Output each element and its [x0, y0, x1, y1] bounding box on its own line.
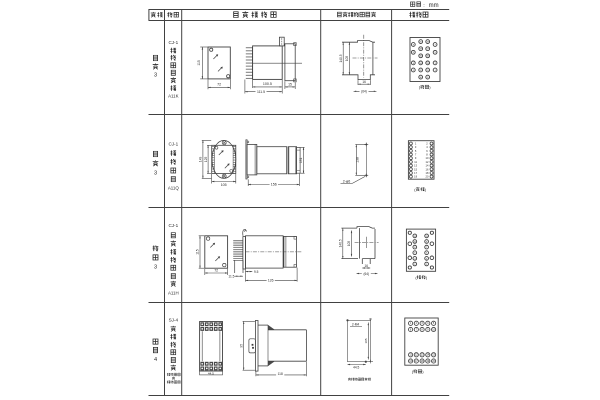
svg-text:11: 11: [414, 160, 417, 164]
svg-text:): ): [426, 275, 428, 280]
svg-text:CJ-1: CJ-1: [168, 223, 178, 228]
svg-text:149: 149: [199, 157, 203, 163]
svg-text:111.5: 111.5: [257, 90, 265, 94]
svg-text:2: 2: [426, 142, 428, 146]
svg-text:15: 15: [288, 82, 292, 86]
svg-text::: :: [423, 3, 425, 9]
svg-text:3: 3: [154, 73, 157, 79]
svg-text:11.5: 11.5: [228, 275, 234, 279]
svg-text:115: 115: [196, 249, 200, 255]
svg-text:95: 95: [239, 344, 243, 348]
svg-text:72: 72: [217, 83, 221, 87]
svg-text:20: 20: [426, 175, 429, 179]
svg-text:131: 131: [299, 157, 303, 163]
svg-text:19: 19: [414, 175, 417, 179]
svg-text:CJ-1: CJ-1: [168, 141, 178, 146]
svg-text:118: 118: [278, 372, 283, 376]
svg-text:13: 13: [414, 164, 417, 168]
svg-text:8: 8: [426, 153, 428, 157]
svg-text:10: 10: [426, 156, 429, 160]
svg-text:7: 7: [415, 153, 417, 157]
svg-text:3: 3: [415, 145, 417, 149]
svg-text:14: 14: [426, 164, 429, 168]
svg-text:105: 105: [345, 56, 349, 62]
svg-text:A11K: A11K: [168, 93, 178, 98]
svg-text:17: 17: [414, 171, 417, 175]
svg-text:140.5: 140.5: [339, 54, 343, 62]
svg-text:16: 16: [365, 264, 369, 268]
svg-text:126: 126: [268, 278, 274, 282]
svg-text:12: 12: [426, 160, 429, 164]
svg-text:140.5: 140.5: [338, 239, 342, 247]
svg-text:105: 105: [364, 338, 368, 343]
svg-text:156: 156: [271, 182, 277, 186]
svg-text:44.5: 44.5: [353, 365, 359, 369]
svg-text:100.5: 100.5: [263, 82, 272, 86]
svg-text:A11Q: A11Q: [168, 186, 179, 191]
svg-text:): ): [422, 369, 424, 374]
svg-text:16: 16: [362, 80, 366, 84]
svg-text:SJ-4: SJ-4: [169, 318, 179, 323]
svg-text:4: 4: [154, 357, 157, 363]
svg-text:3: 3: [154, 264, 157, 270]
svg-text:): ): [429, 85, 431, 90]
svg-text:mm: mm: [429, 3, 439, 9]
svg-text:(64): (64): [363, 272, 369, 276]
svg-text:115: 115: [197, 60, 201, 66]
svg-text:16: 16: [426, 167, 429, 171]
svg-text:(64): (64): [361, 90, 367, 94]
svg-text:(: (: [415, 275, 417, 280]
svg-text:9.5: 9.5: [254, 270, 259, 274]
svg-text:2-φ6: 2-φ6: [343, 179, 351, 183]
svg-text:3: 3: [154, 171, 157, 177]
svg-text:72: 72: [214, 269, 218, 273]
svg-text:(: (: [414, 187, 416, 192]
svg-text:44.5: 44.5: [208, 372, 214, 376]
svg-text:125: 125: [204, 157, 208, 163]
svg-text:1: 1: [415, 142, 417, 146]
svg-text:5: 5: [415, 149, 417, 153]
svg-text:): ): [425, 187, 427, 192]
svg-text:6: 6: [426, 149, 428, 153]
svg-text:CJ-1: CJ-1: [168, 40, 178, 45]
svg-text:4: 4: [426, 145, 428, 149]
svg-text:18: 18: [426, 171, 429, 175]
svg-text:2-M4: 2-M4: [352, 322, 359, 326]
svg-text:138: 138: [356, 157, 360, 163]
svg-text:105: 105: [221, 183, 227, 187]
svg-text:15: 15: [414, 167, 417, 171]
svg-text:105: 105: [347, 241, 351, 247]
svg-text:9: 9: [415, 156, 417, 160]
svg-text:A11H: A11H: [168, 291, 179, 296]
